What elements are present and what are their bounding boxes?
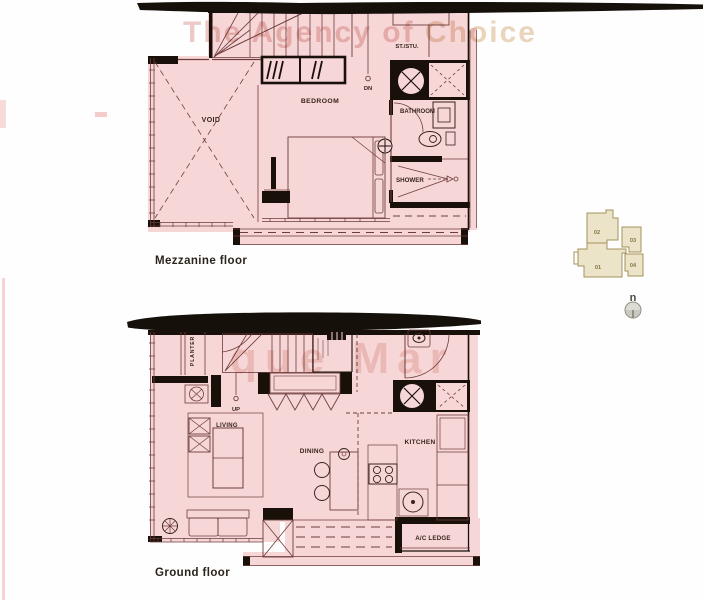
room-label-bedroom: BEDROOM (301, 98, 339, 105)
room-label-ac-ledge: A/C LEDGE (415, 535, 451, 542)
floorplan-scan-page: The Agency of Choice que Mar (0, 0, 704, 600)
room-label-planter: PLANTER (190, 336, 196, 366)
key-plan-unit-02-label: 02 (594, 230, 600, 236)
watermark-agency-prefix: The Agency of (183, 16, 425, 49)
room-label-void: VOID (202, 117, 221, 124)
room-label-kitchen: KITCHEN (405, 439, 436, 446)
scan-artifact-left-streak (2, 278, 5, 600)
north-indicator: n (625, 292, 641, 318)
caption-ground-floor: Ground floor (155, 567, 230, 579)
stair-label-dn: DN (364, 86, 372, 92)
room-label-shower: SHOWER (396, 177, 424, 184)
watermark-scan-text: que Mar (230, 334, 455, 384)
key-plan-unit-01-shape (578, 243, 626, 277)
watermark-agency: The Agency of Choice (183, 16, 537, 50)
key-plan-unit-04-label: 04 (630, 263, 637, 269)
stair-label-up: UP (232, 407, 240, 413)
wardrobe (262, 57, 345, 83)
ceiling-fan-icon (378, 139, 392, 153)
key-plan-unit-03-label: 03 (630, 238, 636, 244)
key-plan-unit-01-label: 01 (595, 265, 601, 271)
room-label-dining: DINING (300, 448, 325, 455)
room-label-living: LIVING (216, 423, 238, 429)
caption-mezzanine-floor: Mezzanine floor (155, 255, 247, 267)
watermark-agency-suffix: Choice (425, 16, 537, 49)
room-label-bathroom: BATHROOM (400, 109, 435, 115)
key-plan: 02 03 01 04 n (570, 200, 670, 325)
scan-artifact-left-smudge (0, 100, 6, 128)
scan-artifact-dash (95, 112, 107, 117)
key-plan-sliver-shape (574, 252, 578, 264)
